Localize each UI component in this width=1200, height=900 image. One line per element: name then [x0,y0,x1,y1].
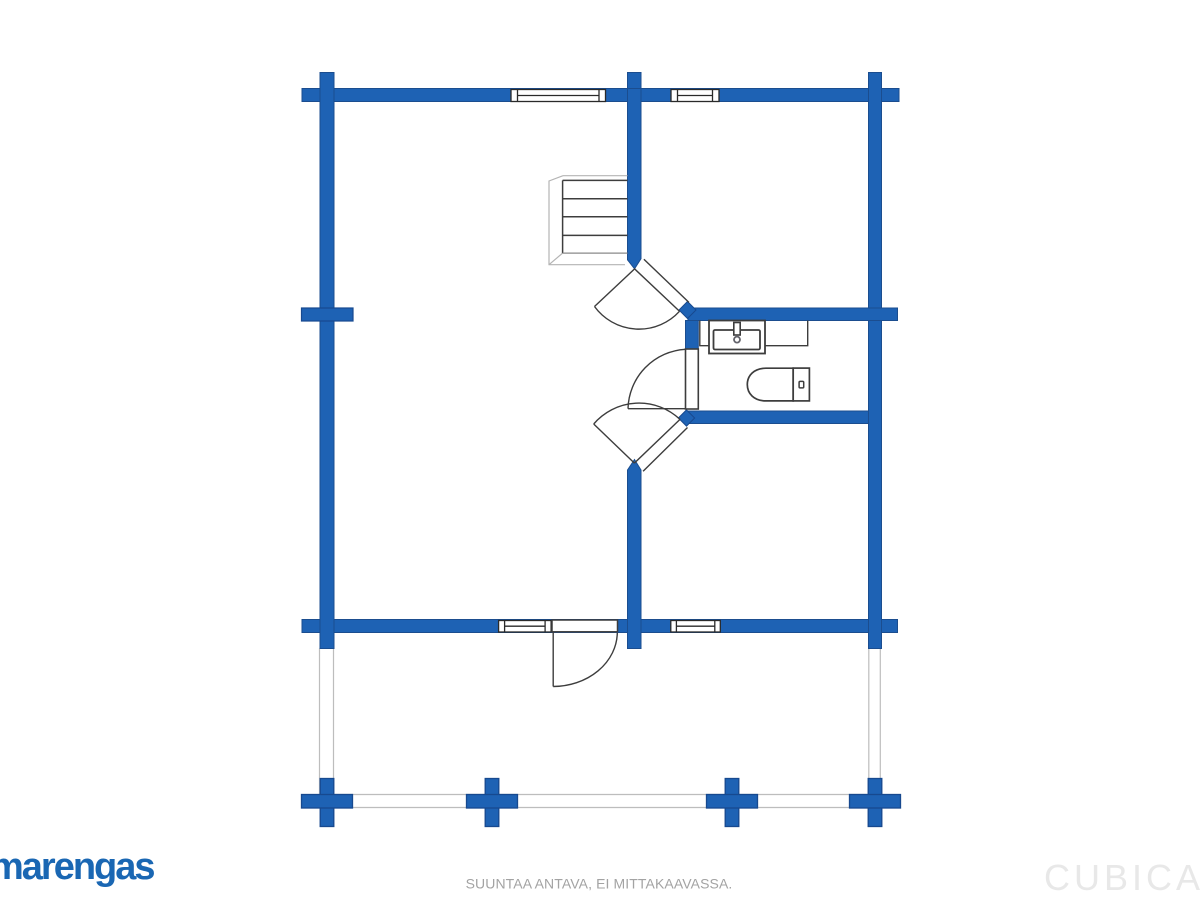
svg-text:SUUNTAA ANTAVA, EI MITTAKAAVAS: SUUNTAA ANTAVA, EI MITTAKAAVASSA. [466,876,733,892]
svg-text:CUBICA: CUBICA [1044,857,1200,898]
svg-text:marengas: marengas [0,846,154,888]
